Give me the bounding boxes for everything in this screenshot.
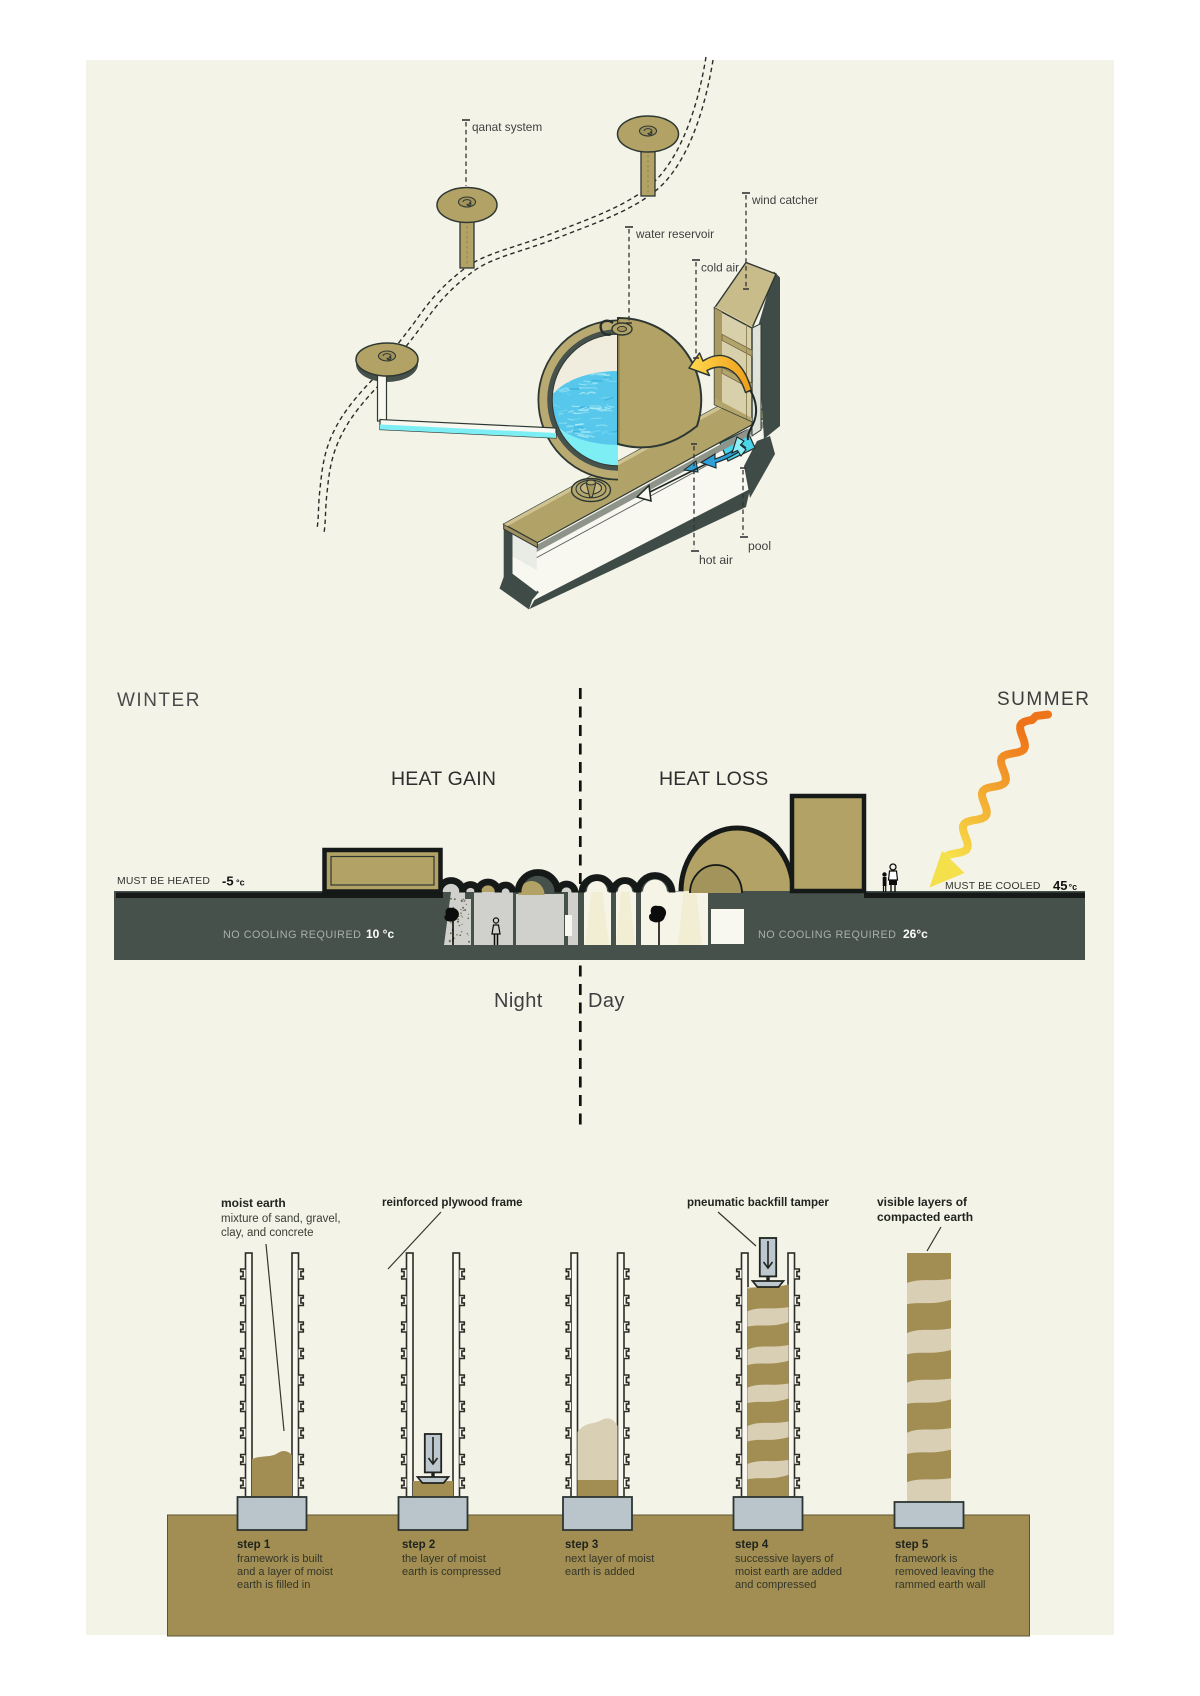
svg-text:26°c: 26°c <box>903 927 928 941</box>
svg-text:and compressed: and compressed <box>735 1579 816 1591</box>
svg-text:earth is added: earth is added <box>565 1566 635 1578</box>
svg-text:qanat system: qanat system <box>472 120 542 134</box>
svg-text:step 4: step 4 <box>735 1539 769 1551</box>
svg-text:WINTER: WINTER <box>117 690 201 711</box>
svg-text:the layer of moist: the layer of moist <box>402 1553 486 1565</box>
svg-text:SUMMER: SUMMER <box>997 689 1090 710</box>
svg-text:and a layer of moist: and a layer of moist <box>237 1566 333 1578</box>
svg-text:visible layers of: visible layers of <box>877 1195 968 1209</box>
svg-text:rammed earth wall: rammed earth wall <box>895 1579 985 1591</box>
svg-text:earth is filled in: earth is filled in <box>237 1579 310 1591</box>
svg-text:Night: Night <box>494 990 543 1012</box>
svg-text:removed leaving the: removed leaving the <box>895 1566 994 1578</box>
svg-text:NO COOLING REQUIRED: NO COOLING REQUIRED <box>223 929 361 941</box>
svg-text:wind catcher: wind catcher <box>751 193 818 207</box>
svg-text:pool: pool <box>748 539 771 553</box>
svg-text:compacted earth: compacted earth <box>877 1210 973 1224</box>
svg-text:next layer of moist: next layer of moist <box>565 1553 654 1565</box>
svg-text:NO COOLING REQUIRED: NO COOLING REQUIRED <box>758 929 896 941</box>
svg-text:Day: Day <box>588 990 625 1012</box>
svg-text:45: 45 <box>1053 878 1067 893</box>
svg-text:step 2: step 2 <box>402 1539 435 1551</box>
svg-text:step 1: step 1 <box>237 1539 271 1551</box>
svg-text:10 °c: 10 °c <box>366 927 394 941</box>
svg-text:moist earth: moist earth <box>221 1196 286 1210</box>
svg-text:moist earth are added: moist earth are added <box>735 1566 842 1578</box>
svg-text:MUST BE COOLED: MUST BE COOLED <box>945 881 1041 892</box>
svg-text:°c: °c <box>1069 882 1078 892</box>
svg-text:step 3: step 3 <box>565 1539 598 1551</box>
svg-text:MUST BE HEATED: MUST BE HEATED <box>117 876 210 887</box>
svg-text:°c: °c <box>236 878 245 888</box>
svg-text:successive layers of: successive layers of <box>735 1553 834 1565</box>
svg-text:reinforced plywood frame: reinforced plywood frame <box>382 1197 523 1209</box>
svg-text:HEAT GAIN: HEAT GAIN <box>391 768 496 790</box>
svg-text:framework is: framework is <box>895 1553 958 1565</box>
svg-text:HEAT LOSS: HEAT LOSS <box>659 768 768 790</box>
svg-text:clay, and concrete: clay, and concrete <box>221 1227 313 1239</box>
svg-text:mixture of sand, gravel,: mixture of sand, gravel, <box>221 1213 341 1225</box>
svg-text:earth is compressed: earth is compressed <box>402 1566 501 1578</box>
svg-text:hot air: hot air <box>699 553 733 567</box>
svg-text:framework is built: framework is built <box>237 1553 323 1565</box>
svg-text:pneumatic backfill tamper: pneumatic backfill tamper <box>687 1197 829 1209</box>
svg-text:-5: -5 <box>222 874 234 889</box>
svg-text:cold air: cold air <box>701 261 739 275</box>
svg-text:water reservoir: water reservoir <box>635 227 714 241</box>
svg-text:step 5: step 5 <box>895 1539 929 1551</box>
